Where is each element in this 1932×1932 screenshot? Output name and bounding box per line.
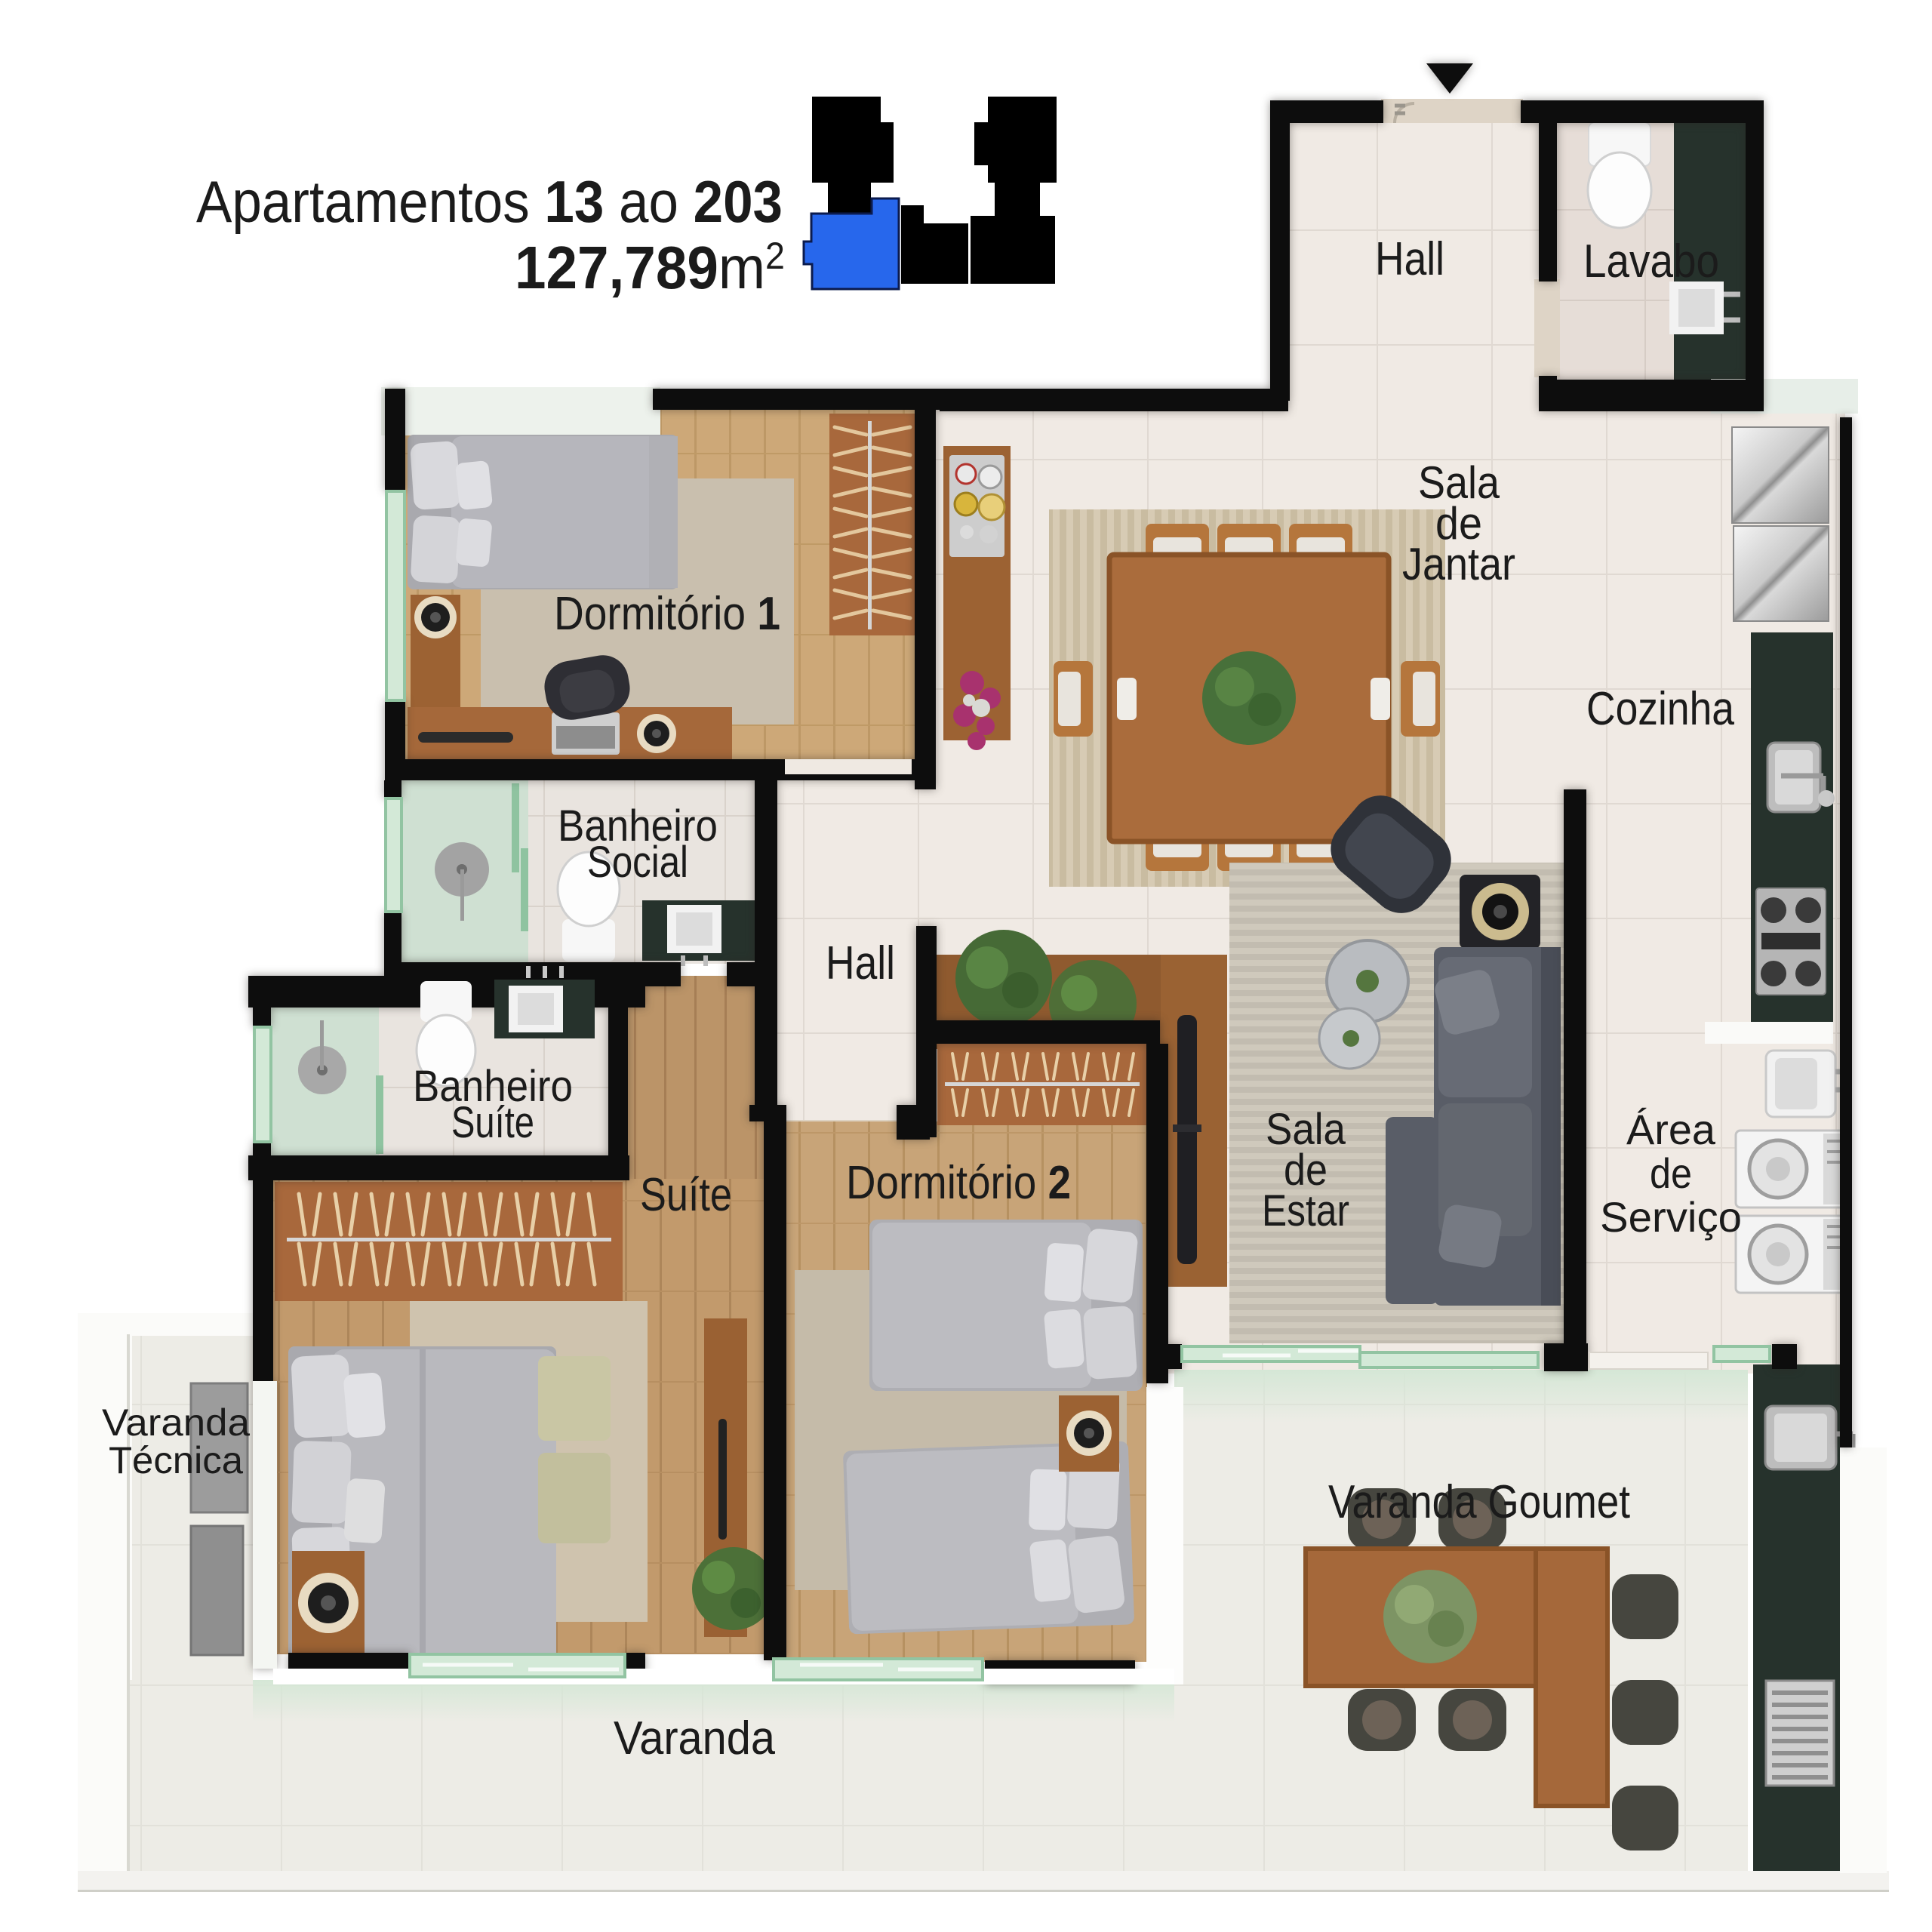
svg-text:Social: Social [587, 838, 688, 887]
svg-text:Serviço: Serviço [1600, 1193, 1742, 1241]
svg-text:Dormitório 2: Dormitório 2 [846, 1157, 1071, 1209]
svg-text:Dormitório 1: Dormitório 1 [554, 588, 780, 640]
svg-text:Hall: Hall [1375, 233, 1444, 285]
svg-text:Apartamentos 13 ao 203: Apartamentos 13 ao 203 [196, 168, 783, 235]
svg-text:Varanda: Varanda [102, 1401, 250, 1444]
svg-text:Varanda Goumet: Varanda Goumet [1328, 1476, 1630, 1528]
svg-text:Suíte: Suíte [640, 1169, 732, 1221]
svg-text:Lavabo: Lavabo [1583, 235, 1719, 288]
svg-text:Área: Área [1626, 1106, 1716, 1153]
svg-text:Técnica: Técnica [109, 1439, 243, 1481]
svg-text:Suíte: Suíte [451, 1098, 534, 1147]
svg-text:Cozinha: Cozinha [1586, 683, 1734, 735]
svg-text:Jantar: Jantar [1402, 539, 1515, 589]
svg-text:Hall: Hall [826, 937, 895, 989]
svg-text:Estar: Estar [1262, 1186, 1349, 1235]
svg-text:de: de [1650, 1149, 1692, 1197]
svg-text:127,789m2: 127,789m2 [515, 234, 785, 301]
svg-text:Varanda: Varanda [614, 1712, 775, 1764]
